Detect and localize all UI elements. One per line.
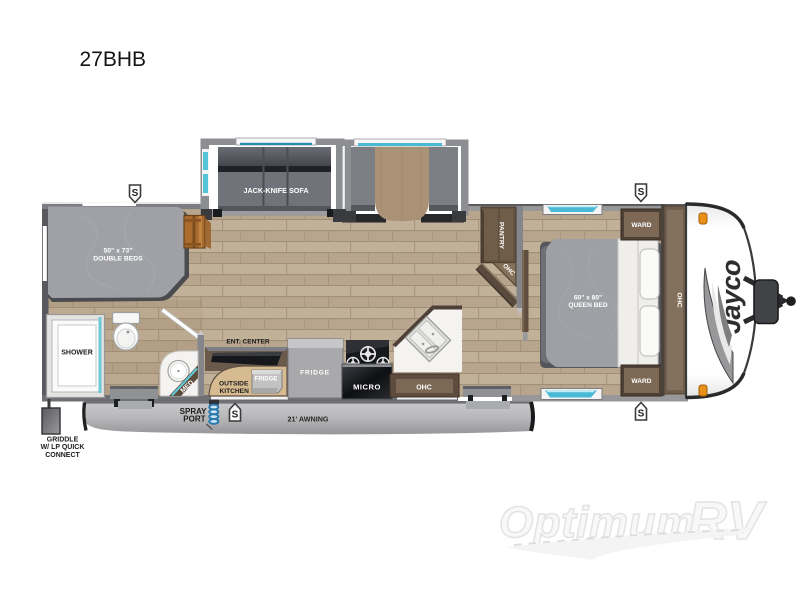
svg-text:WARD: WARD: [631, 378, 651, 385]
svg-text:FRIDGE: FRIDGE: [255, 377, 278, 383]
svg-text:60" x 80": 60" x 80": [574, 295, 602, 302]
svg-text:SHOWER: SHOWER: [61, 350, 93, 357]
svg-text:MICRO: MICRO: [353, 383, 381, 392]
svg-text:W/ LP QUICK: W/ LP QUICK: [41, 444, 85, 451]
svg-text:21' AWNING: 21' AWNING: [288, 414, 329, 423]
svg-text:RV: RV: [688, 491, 767, 551]
svg-text:OHC: OHC: [416, 385, 432, 392]
svg-text:ENT. CENTER: ENT. CENTER: [226, 338, 269, 345]
svg-text:S: S: [638, 409, 645, 420]
svg-text:S: S: [232, 410, 239, 421]
svg-text:50" x 73": 50" x 73": [103, 248, 132, 255]
svg-text:KITCHEN: KITCHEN: [220, 388, 250, 395]
svg-text:GRIDDLE: GRIDDLE: [47, 437, 79, 444]
svg-text:27BHB: 27BHB: [80, 48, 147, 71]
svg-text:WARD: WARD: [631, 222, 651, 229]
svg-text:PANTRY: PANTRY: [498, 222, 505, 250]
svg-text:JACK-KNIFE SOFA: JACK-KNIFE SOFA: [243, 186, 308, 195]
svg-text:CONNECT: CONNECT: [45, 452, 80, 459]
svg-text:S: S: [638, 187, 645, 198]
svg-text:QUEEN BED: QUEEN BED: [568, 302, 607, 309]
svg-text:PORT: PORT: [183, 414, 205, 423]
svg-text:DOUBLE BEDS: DOUBLE BEDS: [93, 256, 143, 263]
svg-text:S: S: [132, 188, 139, 199]
svg-text:OHC: OHC: [676, 292, 683, 307]
svg-text:OUTSIDE: OUTSIDE: [219, 381, 249, 388]
svg-text:FRIDGE: FRIDGE: [300, 370, 330, 377]
